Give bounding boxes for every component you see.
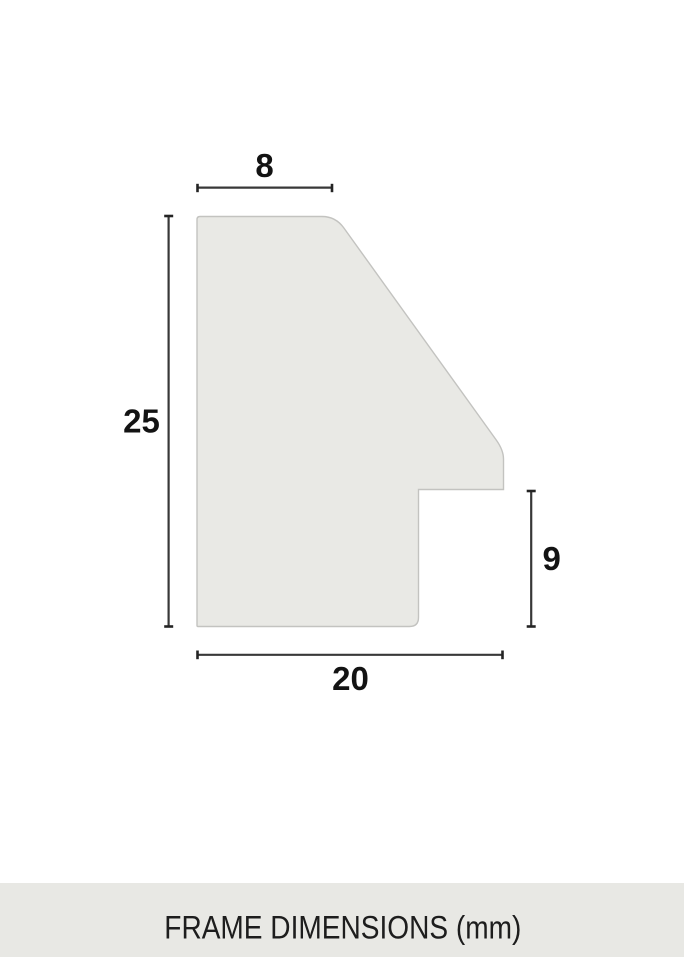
svg-text:FRAME DIMENSIONS (mm): FRAME DIMENSIONS (mm) [164, 909, 521, 946]
svg-text:25: 25 [123, 403, 160, 440]
svg-text:9: 9 [543, 540, 561, 577]
svg-text:8: 8 [255, 147, 273, 184]
svg-text:20: 20 [332, 660, 369, 697]
